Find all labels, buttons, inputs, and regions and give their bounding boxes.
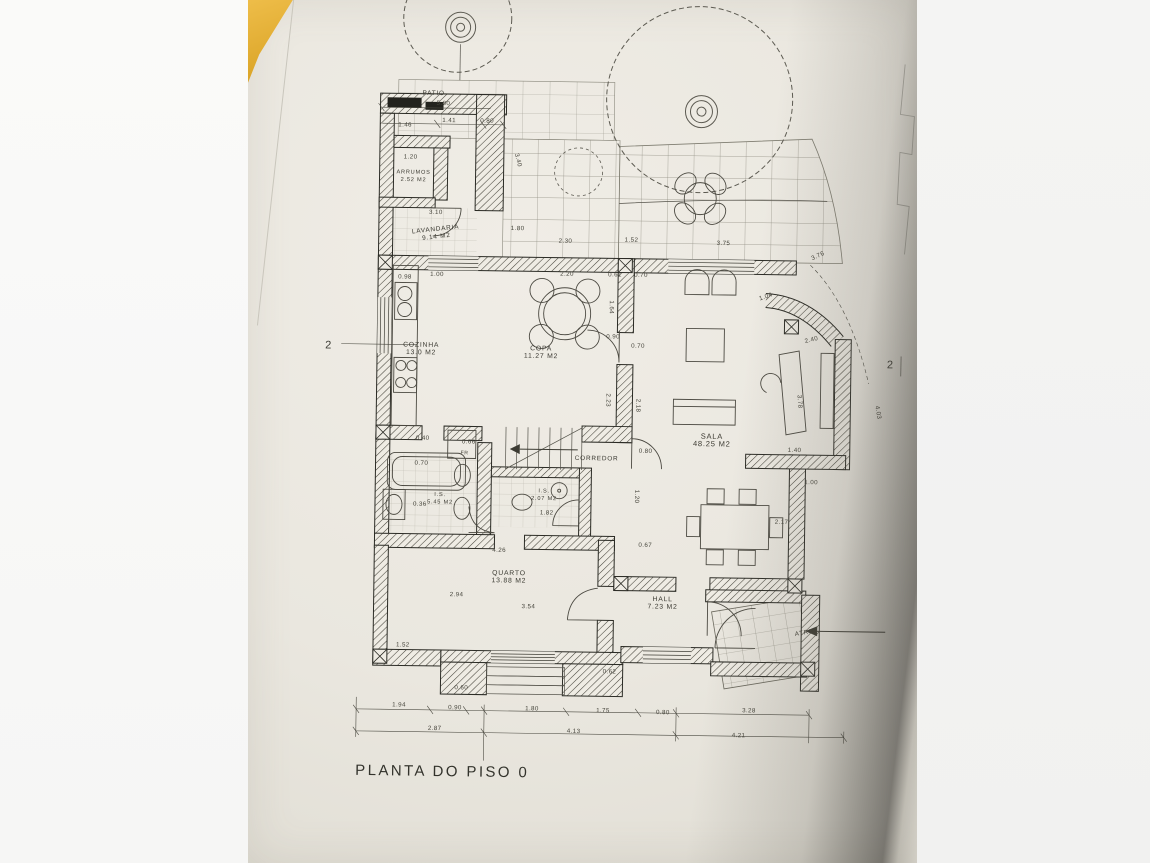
dimension-label: 0.80 [480, 118, 494, 125]
small-tree-trunk [445, 12, 475, 42]
stairs-direction-arrow [510, 444, 520, 454]
dimension-label: 0.67 [638, 542, 652, 549]
dimension-label: 4.13 [567, 728, 581, 735]
dimension-label: 1.94 [392, 701, 406, 708]
dimension-label: 3.10 [429, 209, 443, 216]
dimension-label: 0.98 [398, 273, 412, 280]
dimension-label: 3.54 [521, 603, 535, 610]
plan-title: PLANTA DO PISO 0 [355, 762, 529, 781]
section-marker-left: 2 [325, 339, 332, 351]
room-label: HALL7.23 M2 [647, 596, 677, 611]
dimension-label: 0.62 [603, 668, 617, 675]
sofa [673, 399, 735, 425]
dining-table [700, 505, 769, 550]
dimension-label: 2.20 [560, 271, 574, 278]
desk-chair [761, 373, 781, 392]
floorplan-drawing: PLANTA DO PISO 0 2 2 PATIOARRUMOS2.52 M2… [242, 0, 923, 863]
floorplan-photo: PLANTA DO PISO 0 2 2 PATIOARRUMOS2.52 M2… [248, 0, 917, 863]
left-white-border [0, 0, 248, 863]
dimension-label: 3.78 [796, 395, 804, 409]
room-label: ARRUMOS2.52 M2 [396, 169, 430, 183]
next-page-partial-drawing [897, 64, 916, 254]
dimension-label: 4.21 [732, 732, 746, 739]
room-label: PATIO [423, 90, 445, 97]
dimension-label: 0.90 [606, 333, 620, 340]
dimension-label: 3.28 [742, 707, 756, 714]
dimension-label: 2.87 [428, 725, 442, 732]
dimension-label: 1.82 [540, 509, 554, 516]
dimension-label: 0.90 [448, 704, 462, 711]
dimension-label: 2.23 [604, 393, 611, 407]
stairs [505, 427, 582, 470]
room-label: COPA11.27 M2 [524, 345, 558, 360]
desk [778, 351, 807, 435]
dimension-label: 1.40 [788, 447, 802, 454]
dimension-label: 2.30 [559, 238, 573, 245]
porch-steps [486, 667, 564, 695]
dimension-label: 0.40 [416, 435, 430, 442]
dimension-label: 0.61 [608, 271, 622, 278]
room-label: QUARTO13.88 M2 [491, 570, 526, 585]
dimension-label: 1.00 [804, 479, 818, 486]
dimension-label: 5.80 [437, 100, 451, 107]
room-label: CORREDOR [575, 455, 619, 463]
dimension-label: 1.41 [442, 117, 456, 124]
dimension-label: 1.52 [625, 237, 639, 244]
shelf [820, 353, 834, 428]
section-marker-right: 2 [887, 359, 894, 371]
dimension-label: 1.52 [396, 641, 410, 648]
dimension-label: 3.75 [717, 240, 731, 247]
dimension-label: 4.03 [873, 405, 882, 420]
dimension-label: 1.20 [404, 153, 418, 160]
paper-crease [257, 0, 294, 326]
dimension-label: 4.26 [492, 547, 506, 554]
room-label: COZINHA13.0 M2 [403, 341, 439, 356]
dimension-label: 1.75 [596, 707, 610, 714]
copa-table [529, 278, 600, 349]
dimension-label: 1.64 [608, 300, 615, 314]
dimension-label: 0.70 [634, 272, 648, 279]
dimension-label: 1.46 [398, 121, 412, 128]
dimension-label: 0.70 [631, 343, 645, 350]
right-white-border [917, 0, 1150, 863]
dimension-label: FR [461, 450, 469, 456]
dimension-label: 2.94 [450, 591, 464, 598]
dimension-label: 0.66 [462, 438, 476, 445]
dimension-label: 1.20 [633, 490, 640, 504]
dimension-label: 0.36 [413, 501, 427, 508]
dimension-label: 1.00 [430, 271, 444, 278]
room-label: SALA48.25 M2 [693, 432, 731, 449]
dimension-label: 2.40 [804, 335, 819, 345]
dimension-label: 0.60 [454, 684, 468, 691]
dimension-label: 0.80 [639, 448, 653, 455]
dimension-label: 2.18 [634, 399, 641, 413]
dimension-label: 1.80 [511, 225, 525, 232]
dimension-label: 2.17 [775, 519, 789, 526]
coffee-table [686, 328, 724, 362]
dimension-label: 1.80 [525, 705, 539, 712]
dimension-label: 0.80 [656, 709, 670, 716]
dimension-label: 0.70 [414, 460, 428, 467]
screenshot-stage: PLANTA DO PISO 0 2 2 PATIOARRUMOS2.52 M2… [0, 0, 1150, 863]
